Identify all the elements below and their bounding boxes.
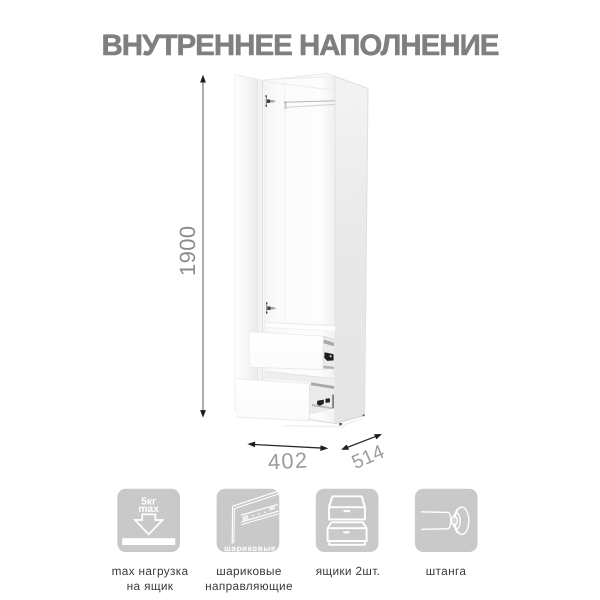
svg-text:402: 402 (267, 447, 309, 474)
svg-text:шариковые: шариковые (224, 544, 276, 553)
svg-text:1900: 1900 (175, 225, 200, 276)
svg-text:514: 514 (349, 441, 388, 474)
